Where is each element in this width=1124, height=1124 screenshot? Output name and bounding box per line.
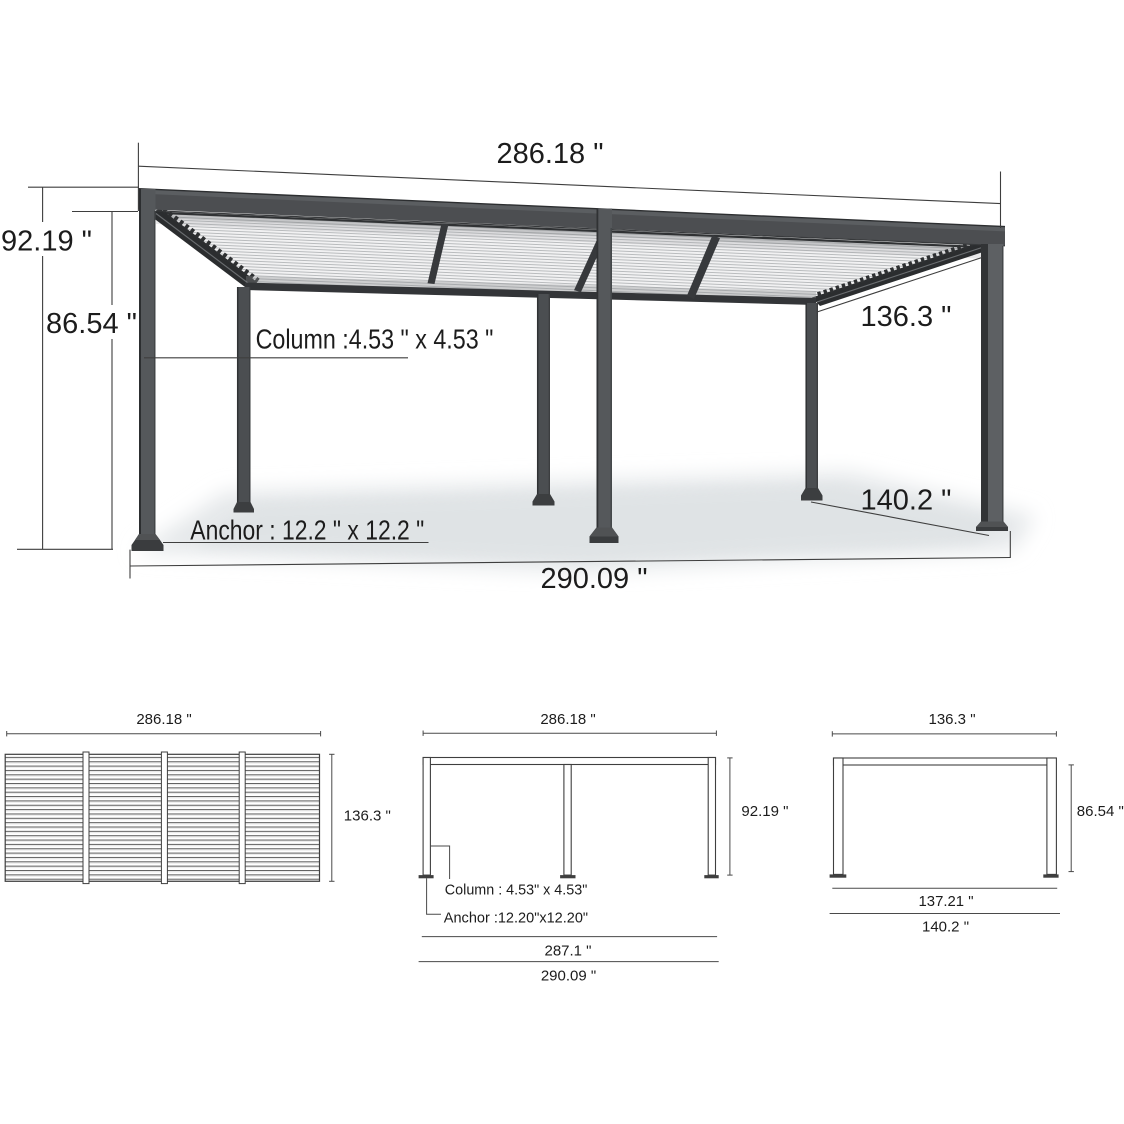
svg-text:137.21 ": 137.21 "	[919, 893, 974, 910]
svg-text:140.2 ": 140.2 "	[922, 919, 969, 936]
svg-text:286.18 ": 286.18 "	[496, 138, 603, 170]
svg-text:Column :4.53 " x 4.53 ": Column :4.53 " x 4.53 "	[256, 324, 494, 355]
svg-text:286.18 ": 286.18 "	[136, 711, 191, 728]
svg-text:Column : 4.53" x 4.53": Column : 4.53" x 4.53"	[445, 882, 588, 899]
svg-text:286.18 ": 286.18 "	[540, 711, 595, 728]
svg-text:Anchor :12.20"x12.20": Anchor :12.20"x12.20"	[444, 910, 588, 927]
svg-text:92.19 ": 92.19 "	[741, 803, 788, 820]
svg-text:290.09 ": 290.09 "	[541, 968, 596, 985]
svg-text:136.3 ": 136.3 "	[344, 808, 391, 825]
svg-text:Anchor : 12.2 " x 12.2 ": Anchor : 12.2 " x 12.2 "	[190, 515, 424, 546]
svg-text:86.54 ": 86.54 "	[1077, 803, 1124, 820]
svg-text:136.3 ": 136.3 "	[928, 711, 975, 728]
svg-text:136.3 ": 136.3 "	[861, 301, 952, 333]
svg-text:92.19 ": 92.19 "	[1, 226, 92, 258]
svg-text:290.09 ": 290.09 "	[540, 563, 647, 595]
svg-text:86.54 ": 86.54 "	[46, 308, 137, 340]
svg-text:287.1 ": 287.1 "	[545, 943, 592, 960]
svg-text:140.2 ": 140.2 "	[861, 485, 952, 517]
